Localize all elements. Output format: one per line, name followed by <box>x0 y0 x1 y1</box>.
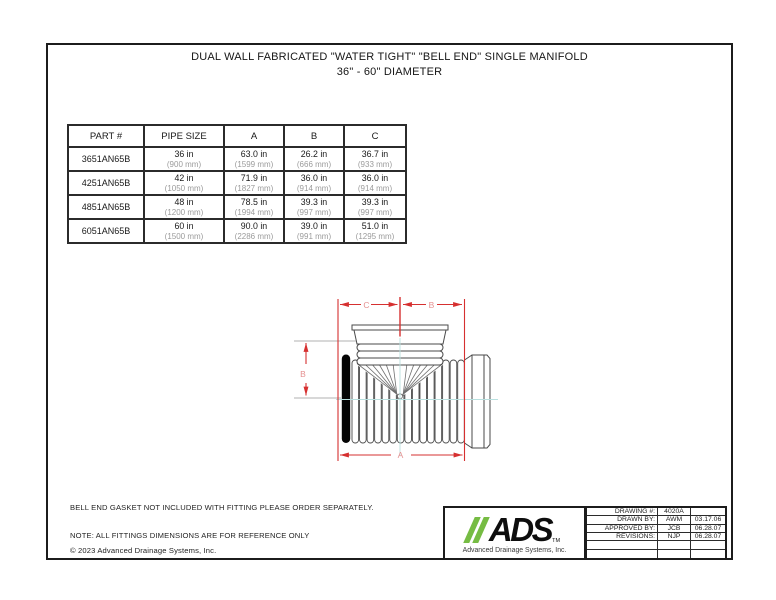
bell-end-gasket <box>342 355 350 444</box>
title-block-date <box>691 550 725 558</box>
note-reference: NOTE: ALL FITTINGS DIMENSIONS ARE FOR RE… <box>70 531 309 540</box>
title-block-label: DRAWING #: <box>587 508 658 516</box>
dimension-cell: 36.7 in(933 mm) <box>344 147 406 171</box>
dimension-cell: 39.3 in(997 mm) <box>284 195 344 219</box>
spec-col-header: PIPE SIZE <box>144 125 224 147</box>
value-inches: 63.0 in <box>225 149 283 160</box>
spec-col-header: B <box>284 125 344 147</box>
title-block-value <box>658 541 691 549</box>
value-mm: (933 mm) <box>345 160 405 170</box>
value-mm: (914 mm) <box>285 184 343 194</box>
note-gasket: BELL END GASKET NOT INCLUDED WITH FITTIN… <box>70 503 374 512</box>
value-inches: 90.0 in <box>225 221 283 232</box>
title-block-value: JCB <box>658 525 691 533</box>
title-line-1: DUAL WALL FABRICATED "WATER TIGHT" "BELL… <box>46 51 733 63</box>
title-block-date <box>691 541 725 549</box>
value-mm: (1599 mm) <box>225 160 283 170</box>
title-block-label <box>587 550 658 558</box>
value-mm: (1295 mm) <box>345 232 405 242</box>
title-block-value: NJP <box>658 533 691 541</box>
spec-row: 6051AN65B60 in(1500 mm)90.0 in(2286 mm)3… <box>68 219 406 243</box>
part-number-cell: 6051AN65B <box>68 219 144 243</box>
dim-label-a: A <box>398 450 404 460</box>
dimension-cell: 60 in(1500 mm) <box>144 219 224 243</box>
value-inches: 36 in <box>145 149 223 160</box>
value-inches: 48 in <box>145 197 223 208</box>
title-block-date: 03.17.06 <box>691 516 725 524</box>
part-number-cell: 4851AN65B <box>68 195 144 219</box>
dimension-cell: 36.0 in(914 mm) <box>344 171 406 195</box>
title-block-label: DRAWN BY: <box>587 516 658 524</box>
value-mm: (2286 mm) <box>225 232 283 242</box>
title-block-date <box>691 508 725 516</box>
title-block-label: APPROVED BY: <box>587 525 658 533</box>
dimension-cell: 78.5 in(1994 mm) <box>224 195 284 219</box>
title-block-date: 06.28.07 <box>691 525 725 533</box>
ads-logo: ADS TM <box>469 513 560 547</box>
value-inches: 39.3 in <box>285 197 343 208</box>
spec-table: PART #PIPE SIZEABC 3651AN65B36 in(900 mm… <box>67 124 407 244</box>
logo-caption: Advanced Drainage Systems, Inc. <box>463 547 567 554</box>
part-number-cell: 3651AN65B <box>68 147 144 171</box>
spec-col-header: A <box>224 125 284 147</box>
value-inches: 78.5 in <box>225 197 283 208</box>
dimension-cell: 48 in(1200 mm) <box>144 195 224 219</box>
spec-row: 4251AN65B42 in(1050 mm)71.9 in(1827 mm)3… <box>68 171 406 195</box>
spec-table-body: 3651AN65B36 in(900 mm)63.0 in(1599 mm)26… <box>68 147 406 243</box>
dimension-cell: 36 in(900 mm) <box>144 147 224 171</box>
value-inches: 36.0 in <box>285 173 343 184</box>
dimension-cell: 90.0 in(2286 mm) <box>224 219 284 243</box>
value-inches: 36.0 in <box>345 173 405 184</box>
logo-text: ADS <box>489 515 551 545</box>
value-inches: 51.0 in <box>345 221 405 232</box>
dimension-cell: 42 in(1050 mm) <box>144 171 224 195</box>
dimension-cell: 26.2 in(666 mm) <box>284 147 344 171</box>
dim-label-b-left: B <box>300 369 306 379</box>
title-line-2: 36" - 60" DIAMETER <box>46 66 733 78</box>
dimension-cell: 63.0 in(1599 mm) <box>224 147 284 171</box>
right-bell-end <box>465 355 491 448</box>
value-mm: (1994 mm) <box>225 208 283 218</box>
spec-row: 4851AN65B48 in(1200 mm)78.5 in(1994 mm)3… <box>68 195 406 219</box>
dimension-cell: 51.0 in(1295 mm) <box>344 219 406 243</box>
fitting-diagram: C B B A <box>280 290 510 470</box>
value-mm: (997 mm) <box>285 208 343 218</box>
value-inches: 42 in <box>145 173 223 184</box>
value-mm: (991 mm) <box>285 232 343 242</box>
value-inches: 26.2 in <box>285 149 343 160</box>
value-inches: 39.3 in <box>345 197 405 208</box>
dimension-cell: 39.0 in(991 mm) <box>284 219 344 243</box>
value-inches: 71.9 in <box>225 173 283 184</box>
ads-logo-box: ADS TM Advanced Drainage Systems, Inc. <box>443 506 586 560</box>
title-block-value: AWM <box>658 516 691 524</box>
dim-label-b-top: B <box>429 300 435 310</box>
value-mm: (666 mm) <box>285 160 343 170</box>
title-block-table: DRAWING #:4020ADRAWN BY:AWM03.17.06APPRO… <box>585 506 727 560</box>
value-mm: (1827 mm) <box>225 184 283 194</box>
value-mm: (1050 mm) <box>145 184 223 194</box>
sheet-title: DUAL WALL FABRICATED "WATER TIGHT" "BELL… <box>46 51 733 78</box>
value-mm: (1500 mm) <box>145 232 223 242</box>
spec-col-header: C <box>344 125 406 147</box>
note-copyright: © 2023 Advanced Drainage Systems, Inc. <box>70 546 216 555</box>
title-block-value <box>658 550 691 558</box>
value-mm: (914 mm) <box>345 184 405 194</box>
spec-row: 3651AN65B36 in(900 mm)63.0 in(1599 mm)26… <box>68 147 406 171</box>
value-inches: 39.0 in <box>285 221 343 232</box>
value-mm: (900 mm) <box>145 160 223 170</box>
trademark-symbol: TM <box>552 538 560 544</box>
spec-col-header: PART # <box>68 125 144 147</box>
part-number-cell: 4251AN65B <box>68 171 144 195</box>
title-block-date: 06.28.07 <box>691 533 725 541</box>
title-block-label <box>587 541 658 549</box>
value-mm: (997 mm) <box>345 208 405 218</box>
dimension-cell: 39.3 in(997 mm) <box>344 195 406 219</box>
dim-label-c: C <box>363 300 369 310</box>
title-block-label: REVISIONS: <box>587 533 658 541</box>
value-inches: 60 in <box>145 221 223 232</box>
drawing-sheet: DUAL WALL FABRICATED "WATER TIGHT" "BELL… <box>0 0 776 600</box>
dimension-cell: 36.0 in(914 mm) <box>284 171 344 195</box>
spec-table-header-row: PART #PIPE SIZEABC <box>68 125 406 147</box>
dimension-cell: 71.9 in(1827 mm) <box>224 171 284 195</box>
value-mm: (1200 mm) <box>145 208 223 218</box>
value-inches: 36.7 in <box>345 149 405 160</box>
title-block-value: 4020A <box>658 508 691 516</box>
